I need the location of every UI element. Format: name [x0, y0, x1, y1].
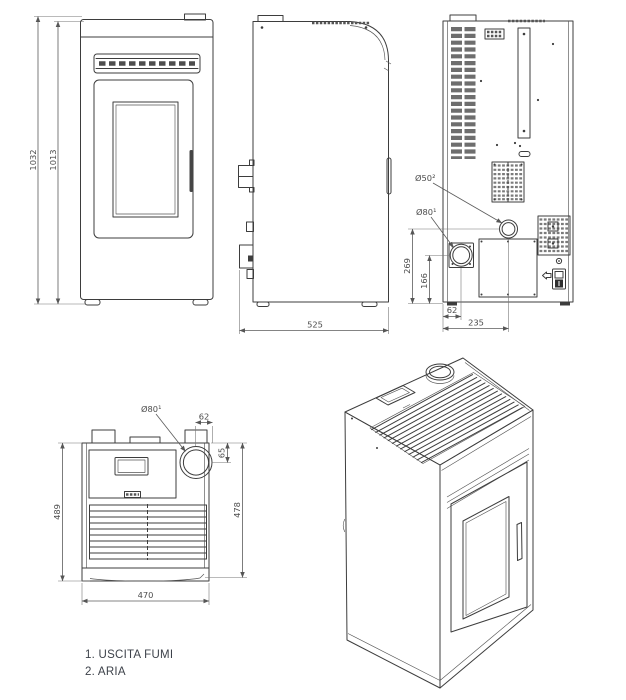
side-top-stub — [258, 16, 283, 22]
label-top-flue-outlet: Ø80¹ — [141, 404, 161, 414]
dim-top-width: 470 — [138, 590, 154, 600]
front-air-vent-grille — [94, 54, 200, 73]
rear-screw-dots — [480, 43, 554, 147]
side-rear-connections — [239, 160, 255, 279]
top-view: Ø80¹ 489 478 470 62 65 — [52, 404, 247, 605]
rear-heat-exchanger-grille — [492, 162, 524, 202]
dim-rear-air-inlet-offset: 235 — [468, 318, 484, 328]
front-door-handle — [190, 150, 194, 192]
rear-thermostat-knob — [556, 258, 561, 263]
rear-louver-grille — [457, 27, 471, 159]
front-door-window — [113, 102, 178, 217]
top-body — [82, 430, 209, 581]
side-view: 525 — [239, 16, 392, 335]
rear-port-labels: Ø50² Ø80¹ — [415, 173, 502, 248]
label-rear-flue-outlet: Ø80¹ — [416, 207, 436, 217]
dim-front-overall-height: 1032 — [28, 149, 38, 170]
legend-item-uscita-fumi: 1. USCITA FUMI — [85, 649, 173, 661]
top-dimensions: 489 478 470 62 65 — [52, 412, 247, 606]
rear-air-inlet-port — [500, 220, 518, 238]
stove-technical-drawing-page: 1032 1013 — [0, 0, 626, 700]
rear-power-inlet — [543, 269, 566, 289]
top-hopper-lid — [89, 450, 176, 498]
iso-door-handle — [517, 523, 522, 561]
dim-side-depth: 525 — [307, 320, 323, 330]
rear-top-stub — [450, 15, 476, 21]
side-door-handle — [387, 158, 391, 194]
front-door — [94, 80, 193, 238]
rear-view: Ø50² Ø80¹ 269 166 62 235 — [402, 15, 573, 332]
dim-top-depth-body: 478 — [232, 502, 242, 518]
top-rear-stub-mid — [130, 437, 160, 443]
iso-left-face — [345, 412, 440, 688]
legend: 1. USCITA FUMI 2. ARIA — [85, 649, 173, 678]
rear-cable-channel — [518, 28, 530, 138]
iso-top-face — [345, 358, 533, 465]
front-view: 1032 1013 — [28, 14, 213, 305]
rear-inspection-panel — [479, 239, 537, 297]
iso-display-panel — [376, 386, 415, 409]
top-rear-stub-left — [92, 430, 115, 443]
iso-top-grille — [370, 373, 525, 464]
iso-flue-collar — [426, 364, 454, 384]
legend-item-aria: 2. ARIA — [85, 666, 126, 678]
label-rear-air-inlet: Ø50² — [415, 173, 435, 183]
dim-top-depth-overall: 489 — [52, 504, 62, 520]
iso-door — [451, 462, 527, 632]
iso-door-window — [463, 497, 509, 620]
dim-rear-air-inlet-height: 269 — [402, 258, 412, 274]
side-feet — [257, 302, 377, 307]
dim-top-flue-offset-side: 62 — [199, 412, 210, 422]
dim-top-flue-offset-rear: 65 — [217, 448, 227, 459]
rear-dimensions: 269 166 62 235 — [402, 229, 509, 332]
rear-nameplate — [485, 29, 504, 39]
dim-front-body-height: 1013 — [48, 149, 58, 170]
front-dimensions: 1032 1013 — [28, 17, 86, 305]
top-air-grille — [90, 504, 207, 560]
stove-technical-drawing: 1032 1013 — [0, 0, 626, 700]
rear-body — [443, 15, 573, 306]
rear-fan-grille — [538, 216, 570, 255]
isometric-view — [343, 358, 533, 688]
side-body — [253, 16, 391, 303]
rear-slot-detail — [519, 152, 530, 157]
top-flue-label: Ø80¹ — [141, 404, 186, 452]
dim-rear-flue-outlet-height: 166 — [419, 273, 429, 289]
front-feet — [85, 300, 208, 306]
rear-arrow-icon — [543, 272, 552, 279]
top-flue-collar — [180, 430, 212, 479]
dim-rear-flue-outlet-offset: 62 — [447, 305, 458, 315]
iso-front-face — [440, 410, 533, 688]
